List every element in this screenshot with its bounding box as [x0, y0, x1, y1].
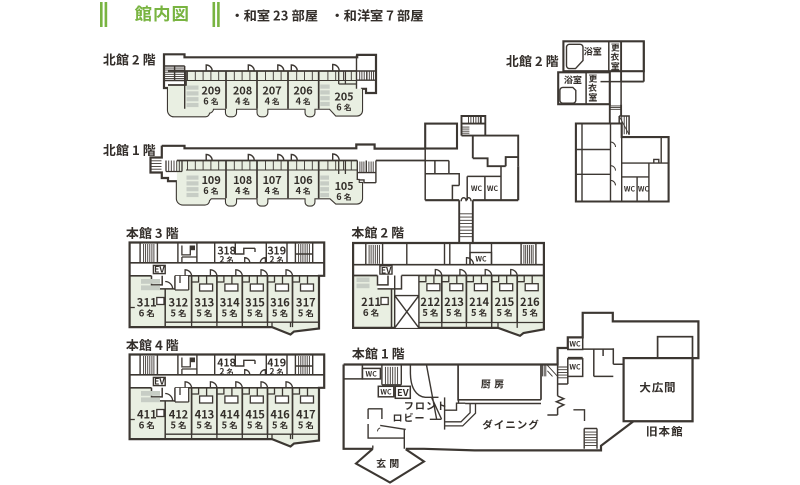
svg-text:5 名: 5 名 — [471, 305, 487, 319]
svg-text:WC: WC — [624, 185, 637, 195]
svg-text:EV: EV — [381, 263, 392, 276]
svg-text:5 名: 5 名 — [196, 418, 212, 432]
svg-text:2 名: 2 名 — [269, 365, 283, 377]
svg-text:WC: WC — [569, 363, 582, 373]
svg-text:4 名: 4 名 — [264, 94, 280, 108]
svg-text:更衣室: 更衣室 — [588, 72, 597, 104]
svg-text:玄関: 玄関 — [376, 455, 402, 470]
svg-text:・和洋室 7 部屋: ・和洋室 7 部屋 — [331, 6, 424, 25]
svg-text:4 名: 4 名 — [235, 183, 251, 197]
svg-text:5 名: 5 名 — [170, 418, 186, 432]
svg-text:5 名: 5 名 — [446, 305, 462, 319]
svg-text:大広間: 大広間 — [639, 380, 677, 396]
svg-text:6 名: 6 名 — [139, 418, 155, 432]
svg-text:EV: EV — [154, 375, 165, 388]
svg-text:2 名: 2 名 — [219, 253, 233, 265]
svg-text:5 名: 5 名 — [247, 418, 263, 432]
svg-text:浴室: 浴室 — [564, 73, 582, 86]
svg-text:5 名: 5 名 — [496, 305, 512, 319]
svg-text:6 名: 6 名 — [336, 189, 352, 203]
svg-text:旧本館: 旧本館 — [646, 424, 684, 440]
svg-text:本館 3 階: 本館 3 階 — [125, 223, 179, 242]
svg-text:6 名: 6 名 — [203, 183, 219, 197]
svg-text:5 名: 5 名 — [222, 306, 238, 320]
svg-text:・和室 23 部屋: ・和室 23 部屋 — [231, 6, 319, 25]
svg-text:5 名: 5 名 — [272, 418, 288, 432]
svg-text:6 名: 6 名 — [336, 100, 352, 114]
svg-text:ロビー: ロビー — [393, 410, 426, 425]
svg-text:5 名: 5 名 — [196, 306, 212, 320]
svg-text:WC: WC — [380, 388, 393, 398]
svg-text:4 名: 4 名 — [295, 94, 311, 108]
svg-text:WC: WC — [475, 255, 488, 265]
svg-text:6 名: 6 名 — [363, 305, 379, 319]
svg-text:北館 2 階: 北館 2 階 — [506, 51, 559, 70]
svg-text:5 名: 5 名 — [422, 305, 438, 319]
svg-text:WC: WC — [487, 184, 500, 194]
svg-text:5 名: 5 名 — [170, 306, 186, 320]
svg-text:北館 1 階: 北館 1 階 — [103, 140, 156, 159]
svg-text:WC: WC — [471, 184, 484, 194]
svg-text:6 名: 6 名 — [139, 306, 155, 320]
svg-text:5 名: 5 名 — [247, 306, 263, 320]
svg-text:本館 2 階: 本館 2 階 — [351, 223, 405, 242]
svg-text:5 名: 5 名 — [298, 306, 314, 320]
svg-text:5 名: 5 名 — [298, 418, 314, 432]
svg-text:5 名: 5 名 — [222, 418, 238, 432]
svg-text:4 名: 4 名 — [295, 183, 311, 197]
svg-text:WC: WC — [569, 340, 582, 350]
svg-text:浴室: 浴室 — [584, 45, 602, 58]
svg-text:4 名: 4 名 — [235, 94, 251, 108]
svg-text:本館 1 階: 本館 1 階 — [351, 344, 405, 363]
svg-text:EV: EV — [154, 263, 165, 276]
svg-text:館内図: 館内図 — [135, 1, 191, 26]
svg-text:2 名: 2 名 — [219, 365, 233, 377]
svg-text:厨房: 厨房 — [480, 376, 507, 391]
svg-text:5 名: 5 名 — [522, 305, 538, 319]
svg-text:6 名: 6 名 — [203, 94, 219, 108]
svg-text:WC: WC — [366, 370, 379, 380]
svg-text:WC: WC — [638, 185, 651, 195]
svg-text:5 名: 5 名 — [272, 306, 288, 320]
svg-text:2 名: 2 名 — [269, 253, 283, 265]
svg-text:4 名: 4 名 — [264, 183, 280, 197]
svg-text:更衣室: 更衣室 — [611, 41, 620, 73]
svg-text:本館 4 階: 本館 4 階 — [125, 335, 179, 354]
svg-text:北館 2 階: 北館 2 階 — [103, 50, 156, 69]
svg-text:ダイニング: ダイニング — [482, 418, 540, 433]
